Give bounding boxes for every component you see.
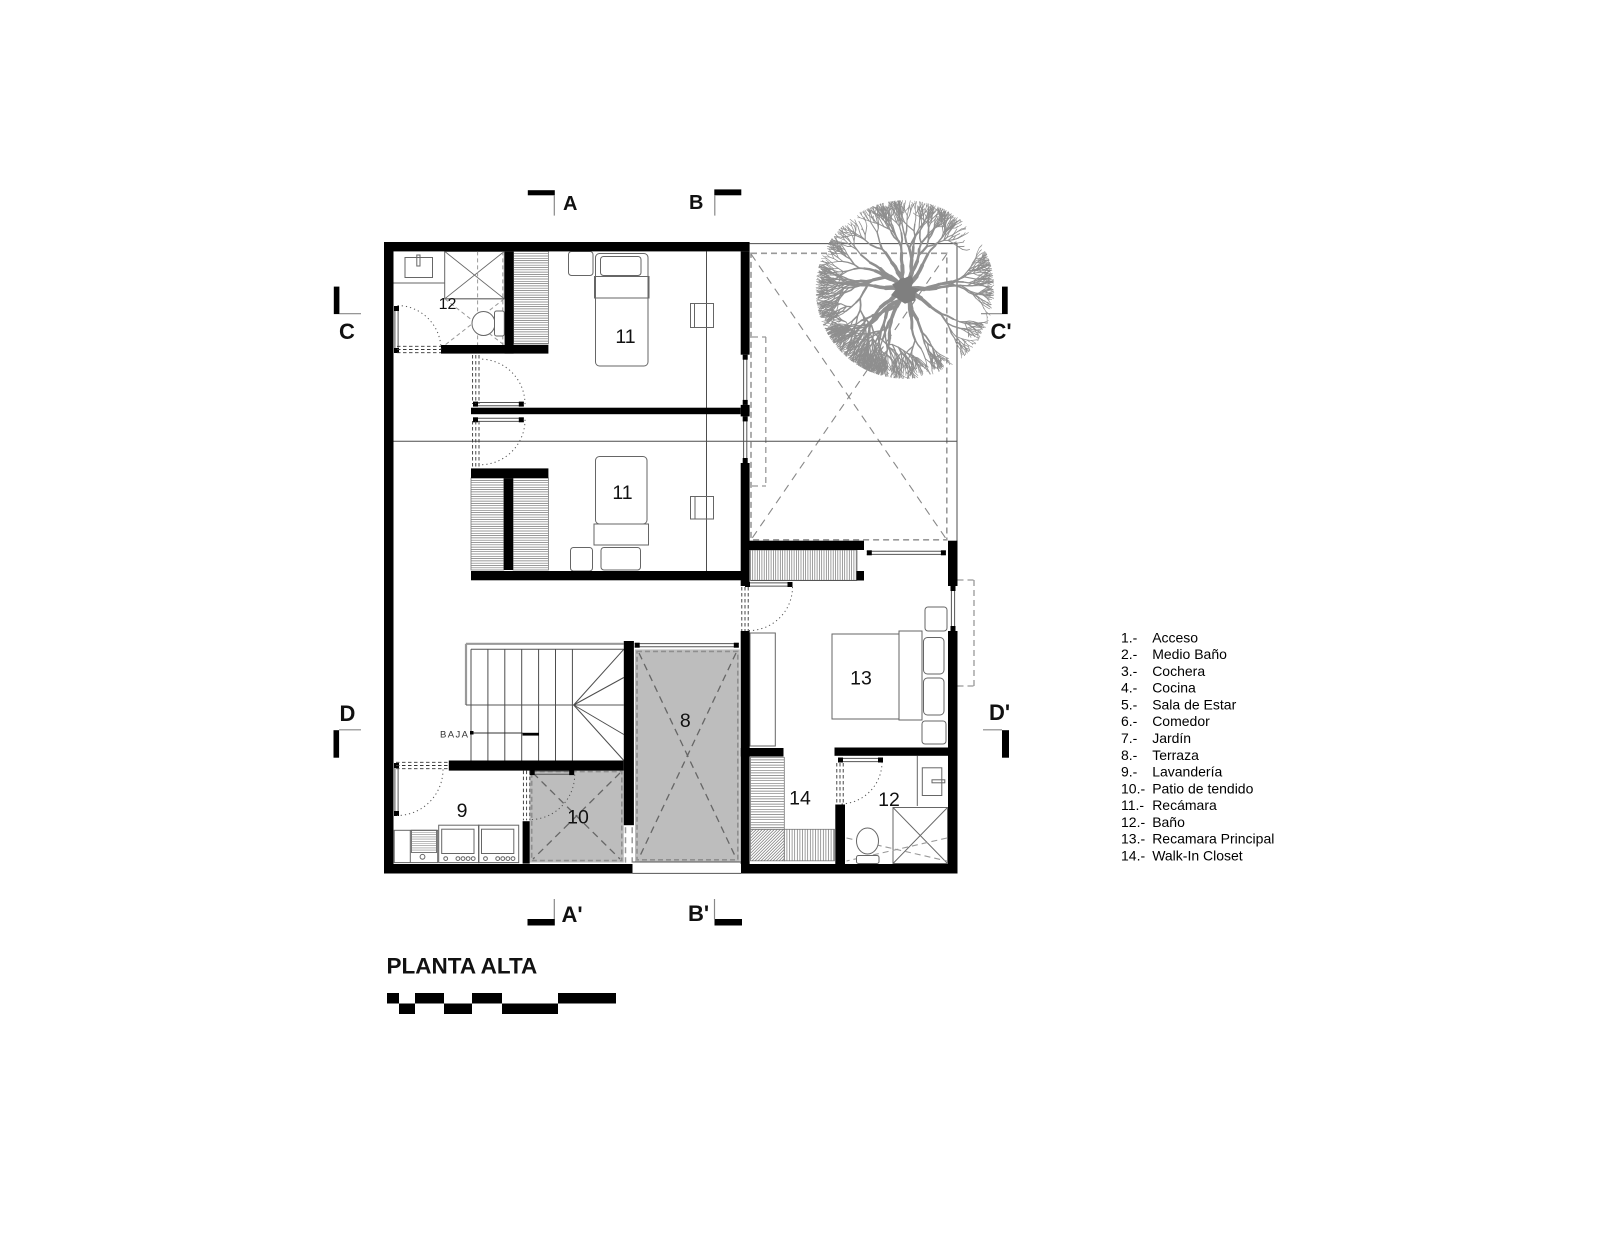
svg-text:Recamara Principal: Recamara Principal	[1152, 831, 1274, 847]
svg-text:8: 8	[680, 710, 691, 732]
svg-text:14: 14	[789, 788, 811, 810]
svg-text:10.-: 10.-	[1121, 780, 1145, 796]
svg-text:BAJA: BAJA	[440, 730, 469, 741]
svg-text:D: D	[340, 701, 356, 726]
svg-text:5.-: 5.-	[1121, 697, 1138, 713]
svg-text:Sala de Estar: Sala de Estar	[1152, 697, 1236, 713]
svg-text:Walk-In Closet: Walk-In Closet	[1152, 847, 1243, 863]
svg-text:Medio Baño: Medio Baño	[1152, 646, 1227, 662]
svg-text:9: 9	[457, 800, 468, 822]
svg-text:11: 11	[615, 326, 635, 348]
svg-text:11.-: 11.-	[1121, 797, 1144, 813]
svg-text:PLANTA ALTA: PLANTA ALTA	[387, 954, 538, 979]
svg-text:Baño: Baño	[1152, 814, 1185, 830]
svg-text:D': D'	[989, 700, 1010, 725]
svg-text:Terraza: Terraza	[1152, 747, 1199, 763]
svg-text:A: A	[563, 193, 577, 215]
svg-text:10: 10	[567, 807, 589, 829]
svg-text:2.-: 2.-	[1121, 646, 1138, 662]
svg-text:C': C'	[991, 319, 1012, 344]
svg-text:12: 12	[439, 296, 457, 313]
svg-text:Patio de tendido: Patio de tendido	[1152, 780, 1253, 796]
svg-text:7.-: 7.-	[1121, 730, 1138, 746]
svg-text:Cocina: Cocina	[1152, 680, 1196, 696]
svg-text:Acceso: Acceso	[1152, 629, 1198, 645]
svg-text:A': A'	[562, 902, 583, 927]
svg-text:13.-: 13.-	[1121, 831, 1145, 847]
svg-text:B: B	[689, 192, 703, 214]
svg-text:Recámara: Recámara	[1152, 797, 1217, 813]
svg-text:3.-: 3.-	[1121, 663, 1138, 679]
svg-text:Cochera: Cochera	[1152, 663, 1205, 679]
svg-text:11: 11	[612, 482, 632, 504]
svg-text:C: C	[339, 319, 355, 344]
svg-text:Jardín: Jardín	[1152, 730, 1191, 746]
svg-text:14.-: 14.-	[1121, 847, 1145, 863]
svg-text:9.-: 9.-	[1121, 764, 1138, 780]
svg-text:8.-: 8.-	[1121, 747, 1138, 763]
svg-text:12: 12	[878, 789, 900, 811]
svg-text:4.-: 4.-	[1121, 680, 1138, 696]
svg-text:13: 13	[850, 668, 872, 690]
svg-text:6.-: 6.-	[1121, 713, 1138, 729]
svg-text:12.-: 12.-	[1121, 814, 1145, 830]
svg-text:Lavandería: Lavandería	[1152, 764, 1222, 780]
svg-text:B': B'	[688, 901, 709, 926]
svg-text:1.-: 1.-	[1121, 629, 1138, 645]
svg-text:Comedor: Comedor	[1152, 713, 1210, 729]
